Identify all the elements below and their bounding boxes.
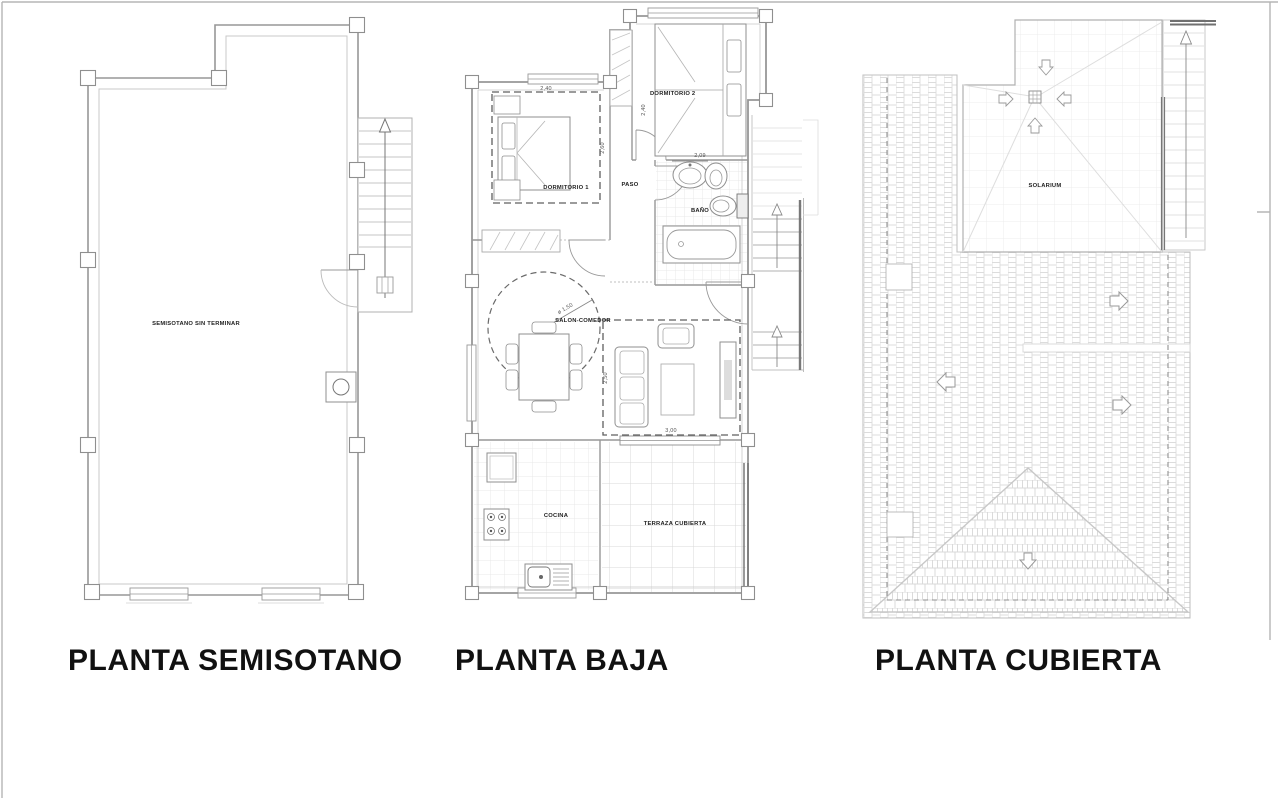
bathtub xyxy=(663,226,740,263)
pillow xyxy=(727,84,741,116)
column-marker xyxy=(466,434,479,447)
column-marker xyxy=(466,587,479,600)
column-marker xyxy=(212,71,227,86)
chair xyxy=(532,322,556,333)
wardrobe xyxy=(610,30,632,106)
basement-door xyxy=(321,270,358,307)
basement-staircase xyxy=(358,118,412,312)
bathtub-rim xyxy=(663,226,740,263)
roof-vent xyxy=(886,264,912,290)
column-marker xyxy=(350,255,365,270)
room-label-cocina: COCINA xyxy=(544,513,569,519)
plan-baja: DORMITORIO 1 2,40 2,60 DORMITORIO 2 2,40… xyxy=(455,8,818,677)
stair-outline xyxy=(1163,20,1205,250)
pillow xyxy=(502,156,515,182)
toilet xyxy=(710,194,748,218)
column-marker xyxy=(742,587,755,600)
column-marker xyxy=(349,585,364,600)
dim-circle-diameter: ø 1,50 xyxy=(557,302,575,316)
chair xyxy=(506,344,518,364)
toilet-tank xyxy=(737,194,748,218)
chair xyxy=(506,370,518,390)
entrance-stairs xyxy=(752,115,818,372)
dormitorio2: DORMITORIO 2 2,40 2,09 xyxy=(610,24,746,159)
sink-faucet-icon xyxy=(539,575,543,579)
bed-double xyxy=(655,24,746,156)
dim-dorm2-depth: 2,40 xyxy=(641,104,647,116)
salon-comedor: ø 1,50 xyxy=(488,272,740,435)
plan-semisotano: SEMISOTANO SIN TERMINAR PLANTA SEMISOTAN… xyxy=(68,18,412,678)
stove xyxy=(484,509,509,540)
dining-table xyxy=(519,334,569,400)
room-label-salon: SALON-COMEDOR xyxy=(555,318,611,324)
room-label-dormitorio2: DORMITORIO 2 xyxy=(650,91,695,97)
chair xyxy=(570,370,582,390)
roof-staircase xyxy=(1162,20,1217,250)
column-marker xyxy=(742,434,755,447)
drain-grate xyxy=(1029,91,1041,103)
kitchen-sink xyxy=(525,564,572,590)
column-marker xyxy=(742,275,755,288)
drawing-sheet: SEMISOTANO SIN TERMINAR PLANTA SEMISOTAN… xyxy=(0,0,1280,800)
chair xyxy=(570,344,582,364)
room-label-bano: BAÑO xyxy=(691,207,709,214)
stair-landing-hatch xyxy=(377,277,393,293)
pillow xyxy=(502,123,515,149)
dim-salon-width: 3,00 xyxy=(665,428,677,434)
column-marker xyxy=(604,76,617,89)
room-label-solarium: SOLARIUM xyxy=(1029,183,1062,189)
door-swing-arc xyxy=(321,270,358,307)
sink-faucet-icon xyxy=(689,164,692,167)
sofa xyxy=(615,347,648,427)
column-marker xyxy=(350,163,365,178)
column-marker xyxy=(760,94,773,107)
plan-title-semisotano: PLANTA SEMISOTANO xyxy=(68,644,403,677)
plan-title-baja: PLANTA BAJA xyxy=(455,644,669,677)
dim-dorm2-width: 2,09 xyxy=(694,153,706,159)
stair-up-arrow-icon xyxy=(772,326,782,337)
column-marker xyxy=(624,10,637,23)
room-label-semisotano: SEMISOTANO SIN TERMINAR xyxy=(152,321,240,327)
room-label-dormitorio1: DORMITORIO 1 xyxy=(543,185,589,191)
column-marker xyxy=(81,71,96,86)
dim-dorm1-width: 2,40 xyxy=(540,86,552,92)
roof-step-edge xyxy=(1023,344,1190,352)
stair-steps-middle xyxy=(753,219,802,271)
basement-wall-inner-face xyxy=(99,36,347,584)
solarium: SOLARIUM xyxy=(963,20,1162,252)
burner-dot xyxy=(501,530,503,532)
fridge xyxy=(487,453,516,482)
porch-roof-lines xyxy=(803,120,818,215)
basement-exterior-wall xyxy=(88,25,358,595)
column-marker xyxy=(466,76,479,89)
tv-screen xyxy=(724,360,732,400)
floor-plan-drawing: SEMISOTANO SIN TERMINAR PLANTA SEMISOTAN… xyxy=(0,0,1280,800)
bed-double xyxy=(498,117,570,190)
nightstand xyxy=(494,96,520,114)
roof-vent xyxy=(887,512,913,537)
solarium-drain xyxy=(1029,91,1041,103)
wardrobe xyxy=(482,230,560,252)
stove-body xyxy=(484,509,509,540)
column-marker xyxy=(760,10,773,23)
nightstand xyxy=(494,180,520,200)
dining-table-set xyxy=(506,322,582,412)
pillow xyxy=(727,40,741,72)
coffee-table xyxy=(661,364,694,415)
bidet xyxy=(705,163,727,189)
basement-columns xyxy=(81,18,365,600)
plan-title-cubierta: PLANTA CUBIERTA xyxy=(875,644,1162,677)
toilet-bowl xyxy=(710,196,736,216)
burner-dot xyxy=(490,530,492,532)
column-marker xyxy=(466,275,479,288)
plan-cubierta: SOLARIUM PLANTA CUBIERTA xyxy=(863,20,1216,677)
tv-unit xyxy=(720,342,736,418)
chair xyxy=(532,401,556,412)
room-label-terraza: TERRAZA CUBIERTA xyxy=(644,521,707,527)
door-dormitorio1 xyxy=(569,240,605,276)
dim-salon-depth: 2,50 xyxy=(603,372,609,384)
burner-dot xyxy=(501,516,503,518)
column-marker xyxy=(350,18,365,33)
solarium-deck xyxy=(963,20,1162,252)
column-marker xyxy=(594,587,607,600)
column-marker xyxy=(81,253,96,268)
column-marker xyxy=(85,585,100,600)
bidet-body xyxy=(705,163,727,189)
room-label-paso: PASO xyxy=(622,182,639,188)
stair-steps-upper xyxy=(753,128,802,206)
appliance-body xyxy=(326,372,356,402)
column-marker xyxy=(81,438,96,453)
burner-dot xyxy=(490,516,492,518)
terrace-floor-tiles xyxy=(602,442,746,592)
dim-dorm1-depth: 2,60 xyxy=(600,142,606,154)
column-marker xyxy=(350,438,365,453)
dormitorio1: DORMITORIO 1 2,40 2,60 xyxy=(482,86,606,252)
boiler-appliance xyxy=(326,372,356,402)
